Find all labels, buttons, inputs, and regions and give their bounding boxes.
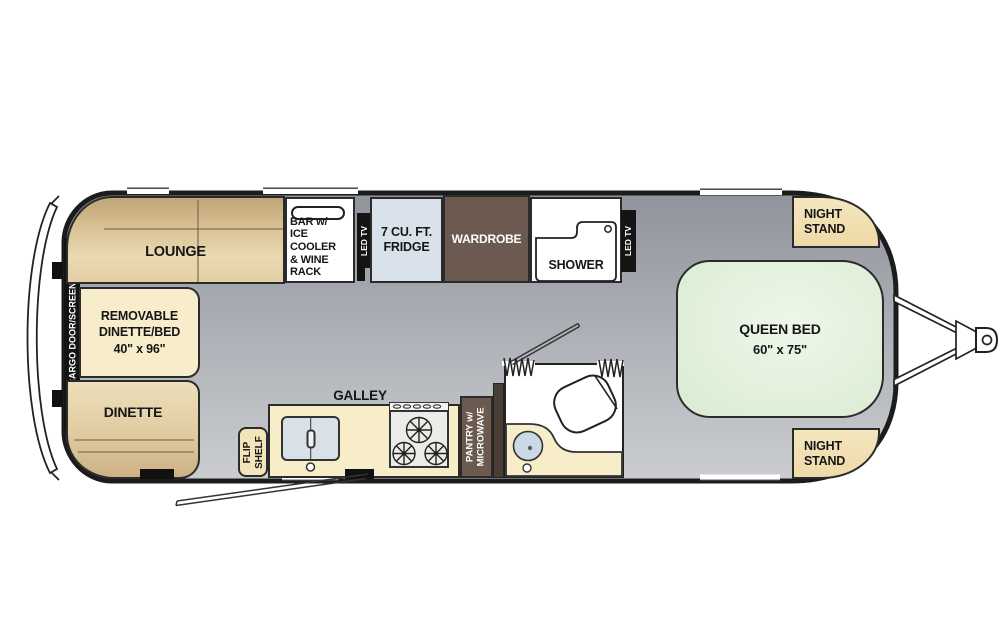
night-stand-bottom-label-line1: NIGHT <box>804 439 878 454</box>
cargo-door-open-arc <box>28 203 58 473</box>
night-stand-bottom-label-line2: STAND <box>804 454 878 469</box>
flip-shelf-label-line2: SHELF <box>253 436 265 469</box>
dinette-seam-2 <box>78 451 194 453</box>
led-tv-front-mount <box>357 268 365 281</box>
flip-shelf: FLIP SHELF <box>238 427 268 477</box>
pantry-microwave: PANTRY w/ MICROWAVE <box>460 396 493 478</box>
fridge-label-line2: FRIDGE <box>381 240 432 255</box>
cargo-door-hinge-top <box>52 262 63 279</box>
queen-bed: QUEEN BED 60" x 75" <box>676 260 884 418</box>
cargo-door-edge-top <box>51 196 59 204</box>
faucet-icon <box>306 429 315 448</box>
flip-shelf-label-line1: FLIP <box>242 436 254 469</box>
led-tv-front-label: LED TV <box>360 225 370 255</box>
fridge-label-line1: 7 CU. FT. <box>381 225 432 240</box>
removable-dinette-dimensions: 40" x 96" <box>99 341 180 357</box>
bar-label-line1: BAR w/ <box>290 216 353 229</box>
led-tv-bedroom-label: LED TV <box>624 226 634 256</box>
removable-dinette-bed: REMOVABLE DINETTE/BED 40" x 96" <box>79 287 200 378</box>
dinette-seat: DINETTE <box>66 380 200 479</box>
queen-bed-label: QUEEN BED <box>739 319 820 340</box>
removable-dinette-label-line2: DINETTE/BED <box>99 324 180 340</box>
galley-sink <box>281 416 340 461</box>
entry-door-swing <box>176 474 368 506</box>
wardrobe-label: WARDROBE <box>452 232 522 246</box>
shower-stall: SHOWER <box>530 197 622 283</box>
night-stand-top-label-line1: NIGHT <box>804 207 878 222</box>
hitch-a-frame <box>894 295 997 386</box>
bath-door-swing <box>511 324 580 365</box>
lounge-seam-vertical <box>197 200 199 282</box>
hitch-coupler-icon <box>983 336 992 345</box>
night-stand-top-label-line2: STAND <box>804 222 878 237</box>
night-stand-bottom: NIGHT STAND <box>792 428 880 479</box>
bathroom <box>504 363 624 478</box>
floorplan-canvas: CARGO DOOR/SCREEN LOUNGE REMOVABLE DINET… <box>0 0 1000 635</box>
dinette-label: DINETTE <box>68 404 198 421</box>
lounge-seam-horizontal <box>104 228 283 230</box>
bar-label-line2: ICE COOLER <box>290 228 353 253</box>
night-stand-top: NIGHT STAND <box>792 196 880 248</box>
shower-label: SHOWER <box>532 258 620 273</box>
cargo-door-label: CARGO DOOR/SCREEN <box>67 282 77 385</box>
queen-bed-dimensions: 60" x 75" <box>739 340 820 360</box>
pantry-label-line2: MICROWAVE <box>477 408 488 467</box>
lounge-sofa: LOUNGE <box>66 196 285 284</box>
led-tv-bedroom: LED TV <box>621 210 636 272</box>
cargo-door-hinge-bottom <box>52 390 63 407</box>
bar-cabinet: BAR w/ ICE COOLER & WINE RACK <box>285 197 355 283</box>
lounge-label: LOUNGE <box>68 244 283 261</box>
cargo-door-edge-bottom <box>51 472 59 480</box>
pantry-partition-wall <box>493 383 504 478</box>
wardrobe-cabinet: WARDROBE <box>443 195 530 283</box>
dinette-seam-1 <box>74 439 194 441</box>
stove-cooktop <box>389 410 449 468</box>
bar-label-line3: & WINE RACK <box>290 254 353 279</box>
refrigerator: 7 CU. FT. FRIDGE <box>370 197 443 283</box>
removable-dinette-label-line1: REMOVABLE <box>99 308 180 324</box>
